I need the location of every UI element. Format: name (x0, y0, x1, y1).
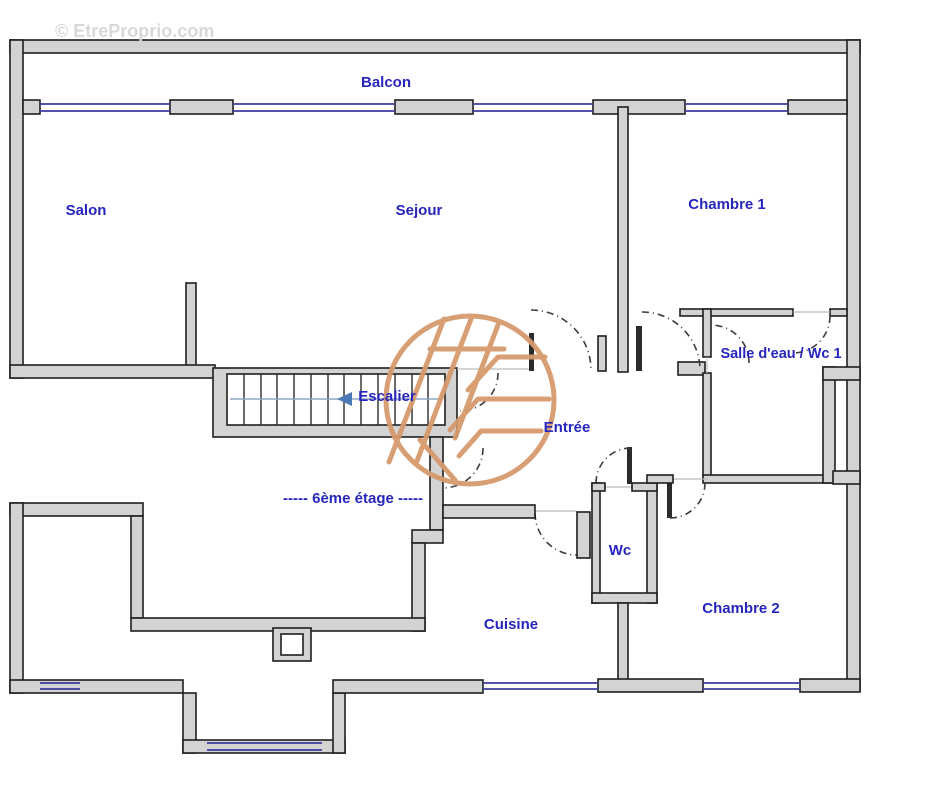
room-label-entree: Entrée (544, 419, 591, 436)
room-label-balcon: Balcon (361, 74, 411, 91)
floor-level-label: ----- 6ème étage ----- (283, 490, 423, 507)
room-label-chambre2: Chambre 2 (702, 600, 780, 617)
door-arc-sejour (531, 310, 591, 370)
floorplan-page: © EtreProprio.com Balcon Salon Sejour Ch… (0, 0, 942, 800)
room-label-escalier: Escalier (358, 388, 416, 405)
door-leaf-wc (627, 447, 632, 484)
salle-deau-walls (680, 309, 860, 484)
room-label-wc: Wc (609, 542, 632, 559)
room-label-cuisine: Cuisine (484, 616, 538, 633)
balcony-parapet (23, 100, 847, 114)
floorplan-canvas: © EtreProprio.com Balcon Salon Sejour Ch… (0, 0, 942, 800)
door-arc-wc (596, 448, 631, 483)
door-leaf-chambre1 (636, 326, 642, 371)
room-label-sejour: Sejour (396, 202, 443, 219)
room-label-chambre1: Chambre 1 (688, 196, 766, 213)
copyright-watermark: © EtreProprio.com (55, 21, 214, 41)
door-leaf-chambre2 (667, 483, 672, 518)
room-label-salon: Salon (66, 202, 107, 219)
door-arc-cuisine (535, 513, 577, 555)
lower-block-walls (10, 437, 860, 753)
door-arc-chambre2 (670, 483, 705, 518)
interior-walls-top (10, 107, 705, 378)
room-label-salle-deau: Salle d'eau / Wc 1 (720, 346, 841, 362)
